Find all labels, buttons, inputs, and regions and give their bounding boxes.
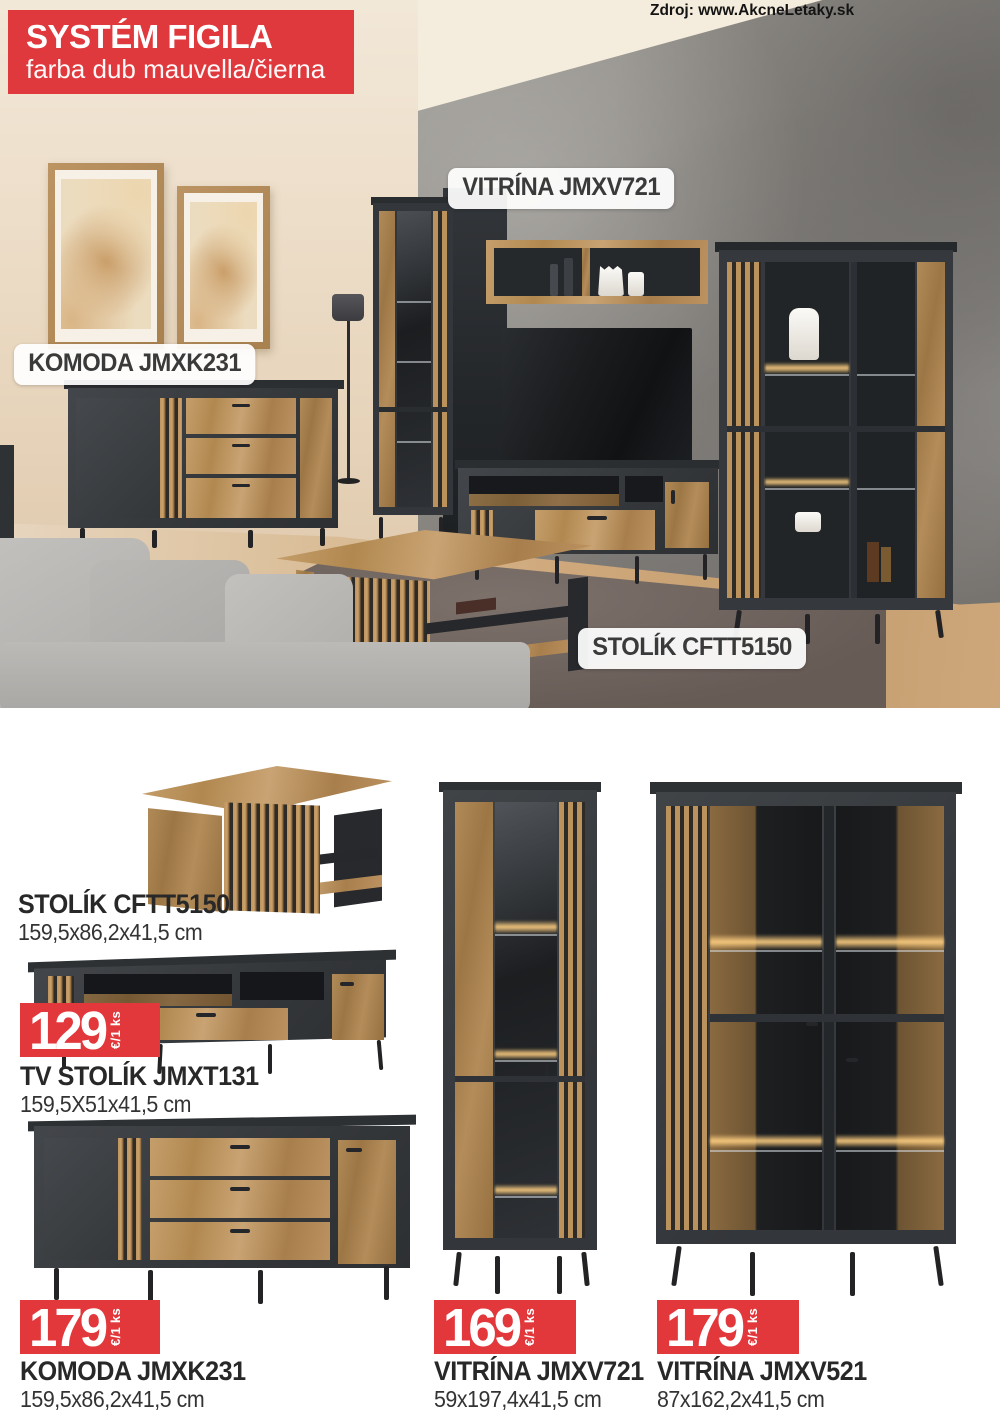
price-amount: 169 bbox=[443, 1300, 519, 1354]
price-unit: €/1 ks bbox=[109, 1308, 122, 1346]
shelf-interior bbox=[494, 248, 700, 296]
komoda-wood-door bbox=[300, 398, 332, 518]
price-unit: €/1 ks bbox=[746, 1308, 759, 1346]
tvstand-leg bbox=[377, 1040, 384, 1070]
product-name-vitrina521: VITRÍNA JMXV521 bbox=[657, 1356, 867, 1387]
komoda-drawer bbox=[150, 1138, 330, 1176]
komoda-leg bbox=[384, 1266, 389, 1300]
decor-vase-dark bbox=[550, 264, 558, 296]
komoda-dark-door bbox=[76, 398, 160, 518]
tvstand-leg bbox=[635, 556, 639, 584]
vitrina-leg bbox=[875, 614, 880, 644]
table-mid-shelf bbox=[426, 605, 578, 635]
photo-label-stolik: STOLÍK CFTT5150 bbox=[578, 628, 806, 669]
vitrina-leg bbox=[933, 1246, 944, 1286]
vitrina-slats bbox=[666, 806, 708, 1230]
vitrina-leg bbox=[557, 1256, 562, 1294]
vitrina-leg bbox=[581, 1252, 590, 1286]
decor-bowl-white bbox=[795, 512, 821, 532]
vitrina-glass-door bbox=[397, 211, 431, 507]
komoda-drawer bbox=[186, 478, 296, 518]
vitrina-leg bbox=[750, 1252, 755, 1296]
vitrina-leg bbox=[453, 1252, 462, 1286]
tv bbox=[502, 328, 692, 470]
vitrina-divider bbox=[727, 426, 945, 432]
product-dim-vitrina521: 87x162,2x41,5 cm bbox=[657, 1386, 824, 1413]
floor-lamp bbox=[330, 294, 370, 486]
price-tag-tv-stolik: 129 €/1 ks bbox=[20, 1003, 160, 1057]
abstract-art bbox=[61, 179, 151, 329]
vitrina-wood-panel bbox=[455, 802, 493, 1238]
wall-art-frame-right bbox=[177, 186, 270, 349]
tv-screen bbox=[502, 328, 692, 463]
decor-vase-white bbox=[628, 272, 644, 296]
lamp-pole bbox=[347, 321, 350, 479]
product-dim-vitrina721: 59x197,4x41,5 cm bbox=[434, 1386, 601, 1413]
vitrina-slats bbox=[433, 211, 447, 507]
komoda-leg bbox=[54, 1268, 59, 1300]
tvstand-leg bbox=[268, 1044, 272, 1074]
price-tag-vitrina721: 169 €/1 ks bbox=[434, 1300, 576, 1354]
price-unit: €/1 ks bbox=[109, 1011, 122, 1049]
tvstand-door bbox=[332, 974, 384, 1040]
vitrina-leg bbox=[495, 1256, 500, 1294]
vitrina521-product-image bbox=[650, 772, 965, 1304]
tvstand-door bbox=[665, 482, 709, 548]
komoda-product-image bbox=[28, 1106, 420, 1304]
sofa-seat bbox=[0, 642, 530, 708]
komoda-leg bbox=[248, 530, 253, 548]
vitrina-jmxv521-photo bbox=[715, 240, 957, 640]
vitrina-slats bbox=[559, 802, 585, 1238]
vitrina-wood-strip bbox=[379, 211, 395, 507]
product-name-komoda: KOMODA JMXK231 bbox=[20, 1356, 246, 1387]
price-amount: 129 bbox=[29, 1003, 105, 1057]
photo-label-vitrina: VITRÍNA JMXV721 bbox=[448, 168, 674, 209]
price-unit: €/1 ks bbox=[523, 1308, 536, 1346]
komoda-drawer bbox=[186, 438, 296, 474]
product-dim-komoda: 159,5x86,2x41,5 cm bbox=[20, 1386, 204, 1413]
tvstand-open-shelf bbox=[240, 972, 324, 1000]
decor-books bbox=[881, 547, 891, 582]
wall-art-frame-left bbox=[48, 163, 164, 349]
komoda-leg bbox=[258, 1270, 263, 1304]
shelf-divider bbox=[582, 248, 590, 296]
vitrina-divider bbox=[379, 407, 447, 412]
wall-shelf bbox=[486, 240, 708, 304]
product-name-tv-stolik: TV STOLÍK JMXT131 bbox=[20, 1061, 259, 1092]
komoda-leg bbox=[152, 530, 157, 548]
vitrina-divider bbox=[710, 1014, 944, 1022]
lamp-shade bbox=[332, 294, 364, 321]
price-tag-komoda: 179 €/1 ks bbox=[20, 1300, 160, 1354]
komoda-wood-door bbox=[338, 1140, 396, 1264]
lamp-base bbox=[337, 478, 360, 484]
komoda-slats bbox=[160, 398, 182, 518]
table-slats bbox=[224, 802, 320, 913]
photo-label-komoda: KOMODA JMXK231 bbox=[14, 344, 255, 385]
komoda-drawer bbox=[150, 1180, 330, 1218]
vitrina-jmxv721-photo bbox=[371, 197, 455, 545]
vitrina-leg bbox=[850, 1252, 855, 1296]
abstract-art bbox=[190, 202, 257, 329]
komoda-drawer bbox=[150, 1222, 330, 1260]
product-name-stolik: STOLÍK CFTT5150 bbox=[18, 889, 230, 920]
tvstand-open-shelf bbox=[625, 476, 663, 502]
decor-books bbox=[867, 542, 879, 582]
decor-vase-dark bbox=[564, 258, 573, 296]
series-badge: SYSTÉM FIGILA farba dub mauvella/čierna bbox=[8, 10, 354, 94]
table-books bbox=[456, 598, 496, 615]
vitrina-glass-door bbox=[495, 802, 557, 1238]
price-amount: 179 bbox=[29, 1300, 105, 1354]
tvstand-shelf-back bbox=[469, 494, 619, 506]
tvstand-leg bbox=[703, 554, 707, 580]
vitrina-divider bbox=[455, 1076, 585, 1082]
komoda-drawer bbox=[186, 398, 296, 434]
vitrina-leg bbox=[935, 610, 944, 638]
source-credit: Zdroj: www.AkcneLetaky.sk bbox=[650, 2, 854, 20]
product-name-vitrina721: VITRÍNA JMXV721 bbox=[434, 1356, 644, 1387]
price-amount: 179 bbox=[666, 1300, 742, 1354]
komoda-leg bbox=[148, 1270, 153, 1304]
decor-vase-white bbox=[789, 308, 819, 360]
series-title: SYSTÉM FIGILA bbox=[26, 19, 354, 55]
vitrina-leg bbox=[671, 1246, 682, 1286]
flyer-page: SYSTÉM FIGILA farba dub mauvella/čierna … bbox=[0, 0, 1000, 1414]
komoda-slats bbox=[118, 1138, 142, 1260]
series-subtitle: farba dub mauvella/čierna bbox=[26, 55, 354, 85]
price-tag-vitrina521: 179 €/1 ks bbox=[657, 1300, 799, 1354]
vitrina721-product-image bbox=[437, 776, 607, 1301]
decor-vase-white bbox=[598, 266, 624, 296]
